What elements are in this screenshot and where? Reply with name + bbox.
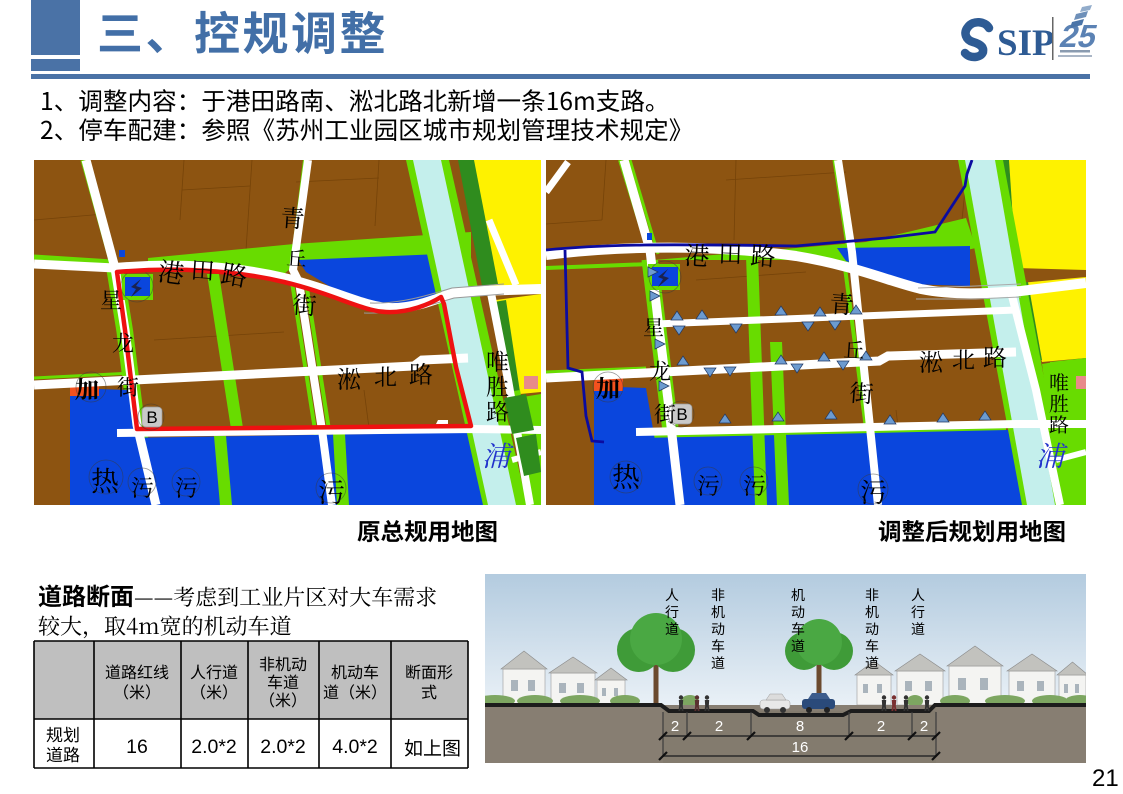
svg-text:2: 2 — [715, 718, 723, 735]
svg-text:SIP: SIP — [997, 23, 1055, 64]
svg-text:2: 2 — [920, 718, 928, 735]
svg-text:21: 21 — [1092, 765, 1119, 792]
svg-text:4.0*2: 4.0*2 — [332, 736, 378, 758]
svg-text:2.0*2: 2.0*2 — [260, 736, 306, 758]
svg-text:8: 8 — [796, 718, 804, 735]
svg-text:16: 16 — [126, 736, 148, 758]
svg-text:B: B — [146, 408, 157, 427]
svg-text:2: 2 — [671, 718, 679, 735]
svg-text:B: B — [676, 405, 687, 424]
svg-text:16: 16 — [792, 739, 809, 756]
svg-text:2.0*2: 2.0*2 — [191, 736, 237, 758]
svg-text:2: 2 — [877, 718, 885, 735]
